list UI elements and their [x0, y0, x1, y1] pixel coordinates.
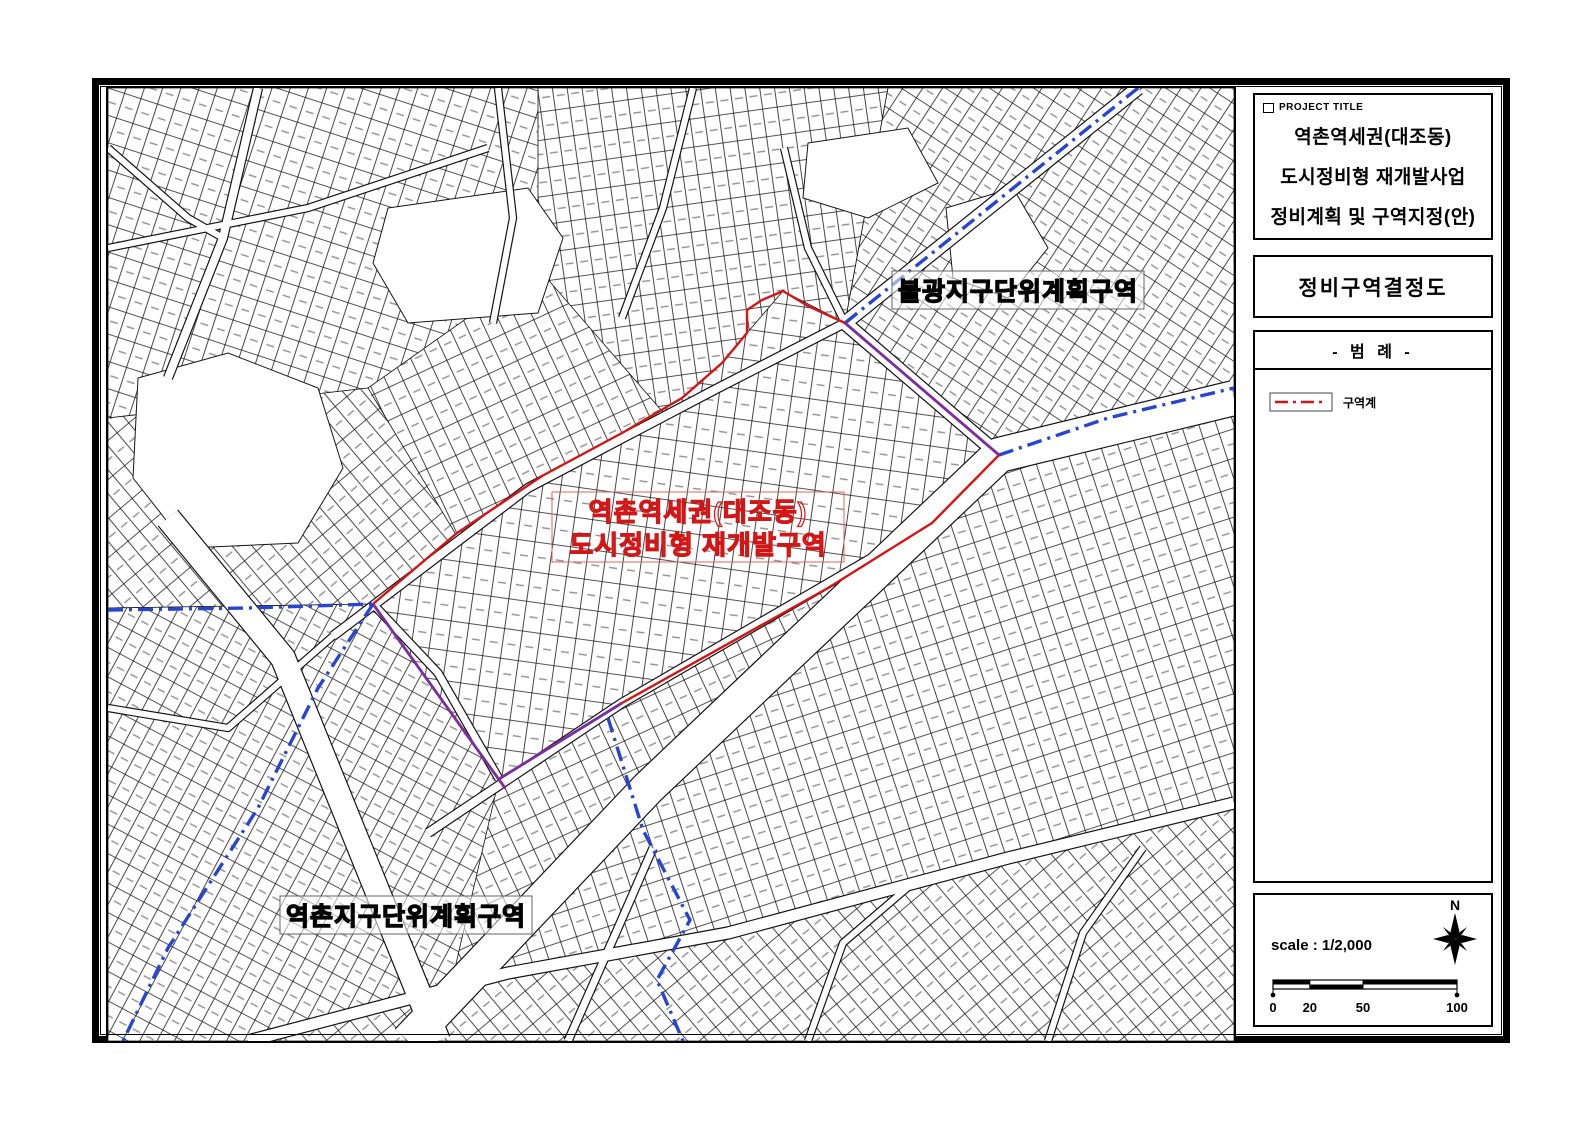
scale-tick-0: 0 — [1269, 1000, 1276, 1015]
title-line-1: 역촌역세권(대조동) — [1294, 122, 1452, 149]
scale-bar-graphic: 0 20 50 100 — [1263, 972, 1475, 1016]
project-title: 역촌역세권(대조동) 도시정비형 재개발사업 정비계획 및 구역지정(안) — [1255, 122, 1491, 229]
scale-tick-100: 100 — [1446, 1000, 1468, 1015]
north-indicator: N — [1429, 899, 1481, 972]
drawing-sheet: 불광지구단위계획구역 역촌지구단위계획구역 역촌역세권(대조동) 도시정비형 재… — [92, 78, 1510, 1043]
district-label-yeokchon: 역촌지구단위계획구역 — [280, 896, 532, 934]
scale-block: scale : 1/2,000 N 0 20 50 — [1253, 893, 1493, 1027]
scale-tick-50: 50 — [1356, 1000, 1370, 1015]
scale-text: scale : 1/2,000 — [1271, 937, 1372, 954]
project-title-row: PROJECT TITLE — [1263, 102, 1491, 113]
scale-bar: 0 20 50 100 — [1263, 972, 1475, 1021]
title-line-3: 정비계획 및 구역지정(안) — [1270, 202, 1475, 229]
title-line-2: 도시정비형 재개발사업 — [1280, 162, 1466, 189]
zone-boundary-line-sample — [1269, 392, 1333, 412]
district-label-bulgwang: 불광지구단위계획구역 — [892, 271, 1144, 309]
bulgwang-district-label: 불광지구단위계획구역 — [898, 278, 1138, 306]
zone-label-line2: 도시정비형 재개발구역 — [569, 530, 826, 560]
checkbox-icon — [1263, 103, 1274, 113]
compass-star-icon — [1429, 911, 1481, 967]
legend-block: - 범 례 - 구역계 — [1253, 330, 1493, 883]
cadastral-map: 불광지구단위계획구역 역촌지구단위계획구역 역촌역세권(대조동) 도시정비형 재… — [108, 88, 1234, 1041]
legend-item-label: 구역계 — [1343, 394, 1376, 411]
title-block: PROJECT TITLE 역촌역세권(대조동) 도시정비형 재개발사업 정비계… — [1253, 93, 1493, 240]
project-title-label: PROJECT TITLE — [1279, 102, 1363, 113]
scale-tick-20: 20 — [1303, 1000, 1317, 1015]
cadastral-geometry — [108, 88, 1234, 1041]
zone-label-line1: 역촌역세권(대조동) — [589, 497, 808, 527]
drawing-name-block: 정비구역결정도 — [1253, 255, 1493, 318]
legend-item-zone-boundary: 구역계 — [1269, 392, 1491, 412]
yeokchon-district-label: 역촌지구단위계획구역 — [286, 903, 526, 931]
map-area: 불광지구단위계획구역 역촌지구단위계획구역 역촌역세권(대조동) 도시정비형 재… — [106, 86, 1236, 1043]
legend-header: - 범 례 - — [1255, 332, 1491, 370]
drawing-name: 정비구역결정도 — [1298, 272, 1447, 302]
north-label: N — [1429, 899, 1481, 911]
